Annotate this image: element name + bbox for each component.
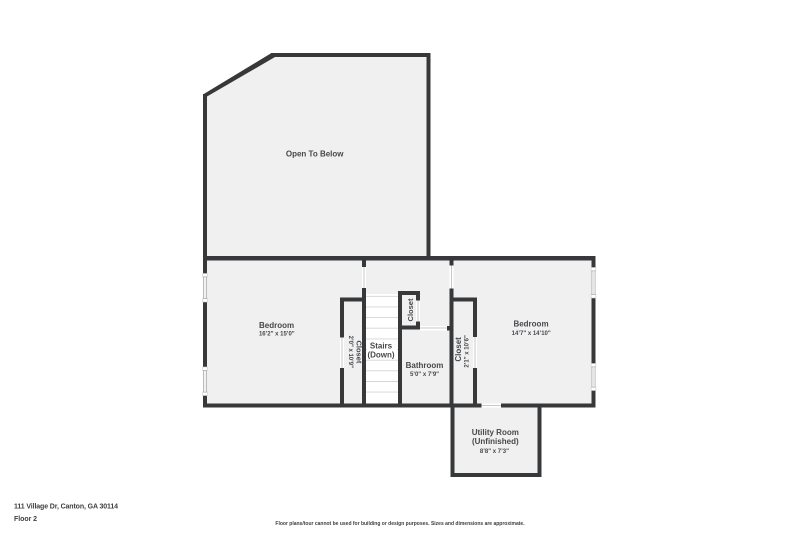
svg-text:Utility Room: Utility Room xyxy=(472,428,519,437)
svg-text:Floor plans/tour cannot be use: Floor plans/tour cannot be used for buil… xyxy=(275,521,525,527)
svg-text:Open To Below: Open To Below xyxy=(286,150,344,159)
svg-text:14’7" x 14’10": 14’7" x 14’10" xyxy=(512,331,551,337)
svg-text:(Down): (Down) xyxy=(367,350,394,359)
svg-text:(Unfinished): (Unfinished) xyxy=(472,437,519,446)
svg-text:Closet: Closet xyxy=(454,337,463,362)
svg-text:Bedroom: Bedroom xyxy=(513,320,548,329)
svg-text:111 Village Dr, Canton, GA 301: 111 Village Dr, Canton, GA 30114 xyxy=(14,504,118,511)
svg-text:Stairs: Stairs xyxy=(370,341,393,350)
svg-text:Bathroom: Bathroom xyxy=(406,361,444,370)
svg-text:Floor 2: Floor 2 xyxy=(14,516,37,523)
svg-text:16’2" x 15’0": 16’2" x 15’0" xyxy=(259,331,295,337)
svg-text:2’0" x 10’9": 2’0" x 10’9" xyxy=(347,336,353,369)
svg-text:5’0" x 7’9": 5’0" x 7’9" xyxy=(410,372,439,378)
svg-text:Closet: Closet xyxy=(354,340,363,363)
svg-text:2’1" x 10’6": 2’1" x 10’6" xyxy=(464,335,470,368)
svg-text:Bedroom: Bedroom xyxy=(259,321,294,330)
svg-text:Closet: Closet xyxy=(406,298,415,321)
svg-text:8’8" x 7’3": 8’8" x 7’3" xyxy=(480,449,509,455)
